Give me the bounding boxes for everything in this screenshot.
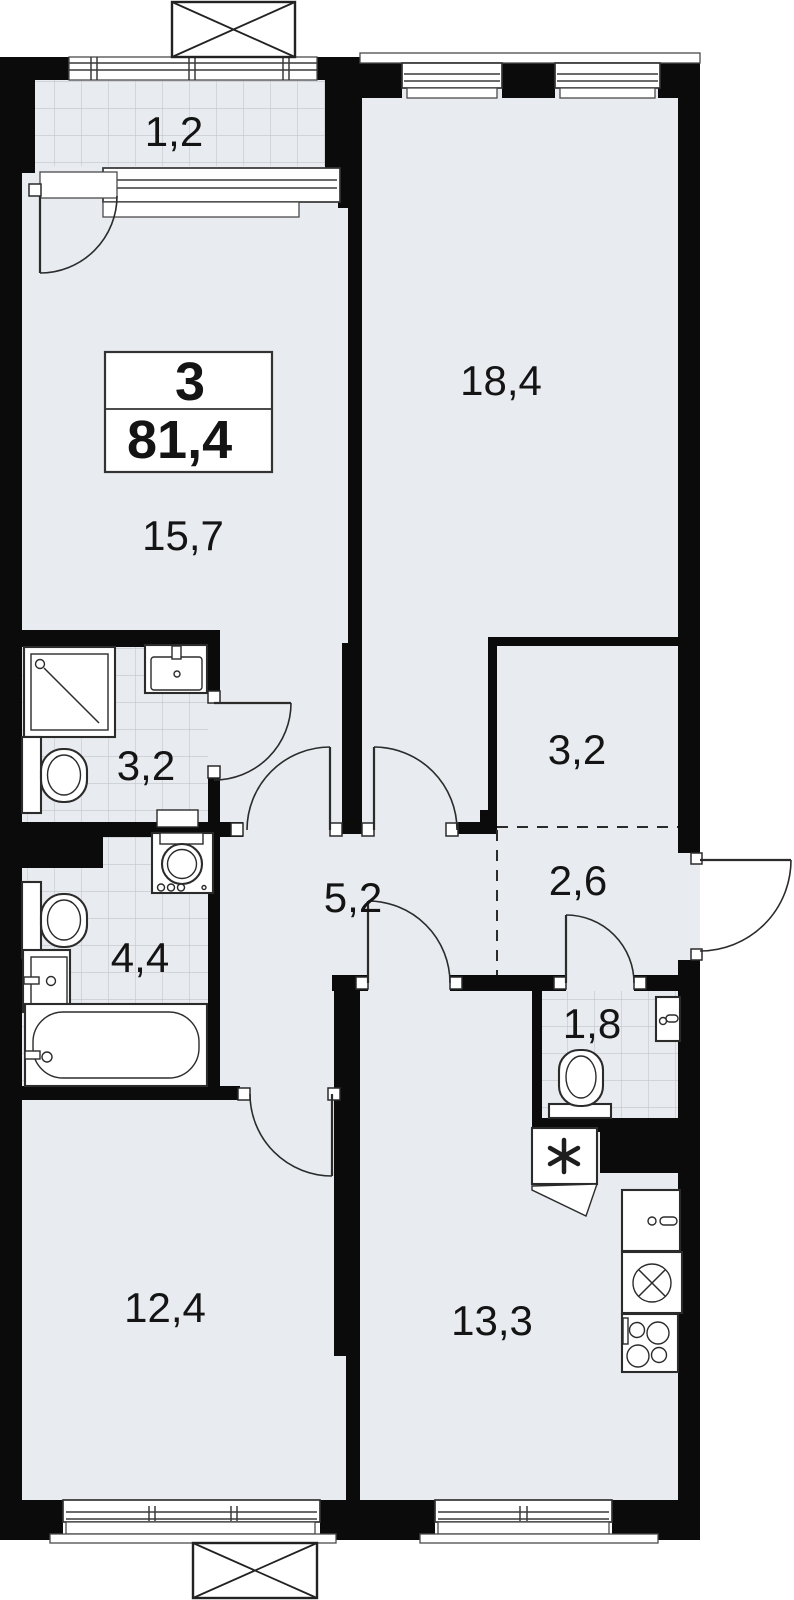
balcony-door-threshold — [40, 172, 117, 198]
entrance-door — [700, 860, 791, 951]
bathtub-icon — [25, 1004, 207, 1086]
window-living-1 — [402, 63, 502, 98]
window-living-2 — [555, 63, 660, 98]
unit-rooms-count: 3 — [175, 352, 205, 412]
room-area-wardrobe: 3,2 — [548, 726, 606, 773]
unit-total-area: 81,4 — [127, 410, 232, 470]
stove-icon — [622, 1314, 678, 1372]
sink-2-icon — [23, 950, 70, 1012]
room-area-bathroom: 3,2 — [117, 742, 175, 789]
unit-info-box: 3 81,4 — [105, 352, 272, 472]
room-area-hallway: 5,2 — [324, 874, 382, 921]
wc-sink-icon — [656, 997, 680, 1041]
room-area-entrance-hall: 2,6 — [549, 857, 607, 904]
room-area-wc: 1,8 — [563, 1000, 621, 1047]
room-area-bedroom-2: 12,4 — [124, 1284, 206, 1331]
exterior-sill — [360, 53, 700, 63]
room-area-bedroom: 15,7 — [142, 512, 224, 559]
shelf-icon — [157, 810, 198, 827]
sink-icon — [145, 645, 207, 693]
balcony-marker-bottom — [193, 1543, 317, 1598]
shower-icon — [24, 647, 115, 737]
window-bedroom2 — [50, 1500, 336, 1543]
room-area-bathroom-2: 4,4 — [111, 934, 169, 981]
room-area-living-room: 18,4 — [460, 357, 542, 404]
floor-plan-page: 3 81,4 1,2 18,4 15,7 3,2 3,2 5,2 2,6 4,4… — [0, 0, 794, 1600]
balcony-marker-top — [172, 2, 295, 57]
kitchen-sink-icon — [622, 1252, 682, 1313]
washing-machine-icon — [152, 833, 213, 893]
room-area-kitchen: 13,3 — [451, 1297, 533, 1344]
balcony-glazing — [69, 57, 317, 80]
room-area-balcony: 1,2 — [145, 108, 203, 155]
kitchen-counter-icon — [622, 1190, 680, 1251]
floor-plan: 3 81,4 1,2 18,4 15,7 3,2 3,2 5,2 2,6 4,4… — [0, 0, 794, 1600]
